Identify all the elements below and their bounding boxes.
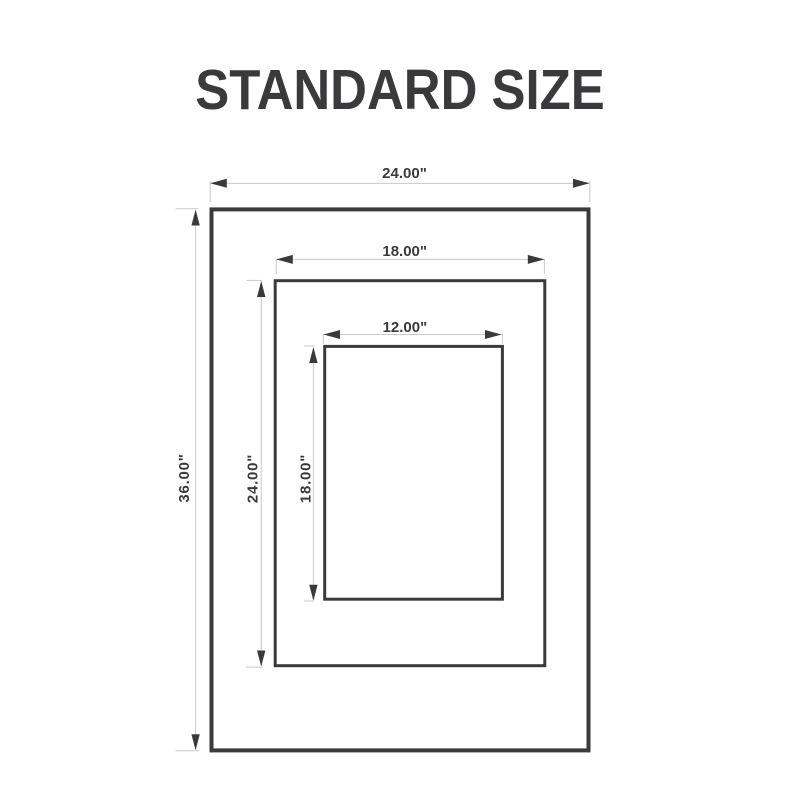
svg-text:STANDARD SIZE: STANDARD SIZE (195, 59, 605, 122)
svg-text:36.00": 36.00" (176, 453, 193, 502)
svg-text:12.00": 12.00" (383, 319, 428, 336)
svg-text:24.00": 24.00" (382, 165, 427, 182)
svg-text:24.00": 24.00" (245, 454, 262, 503)
svg-text:18.00": 18.00" (298, 454, 315, 503)
svg-text:18.00": 18.00" (382, 243, 427, 260)
